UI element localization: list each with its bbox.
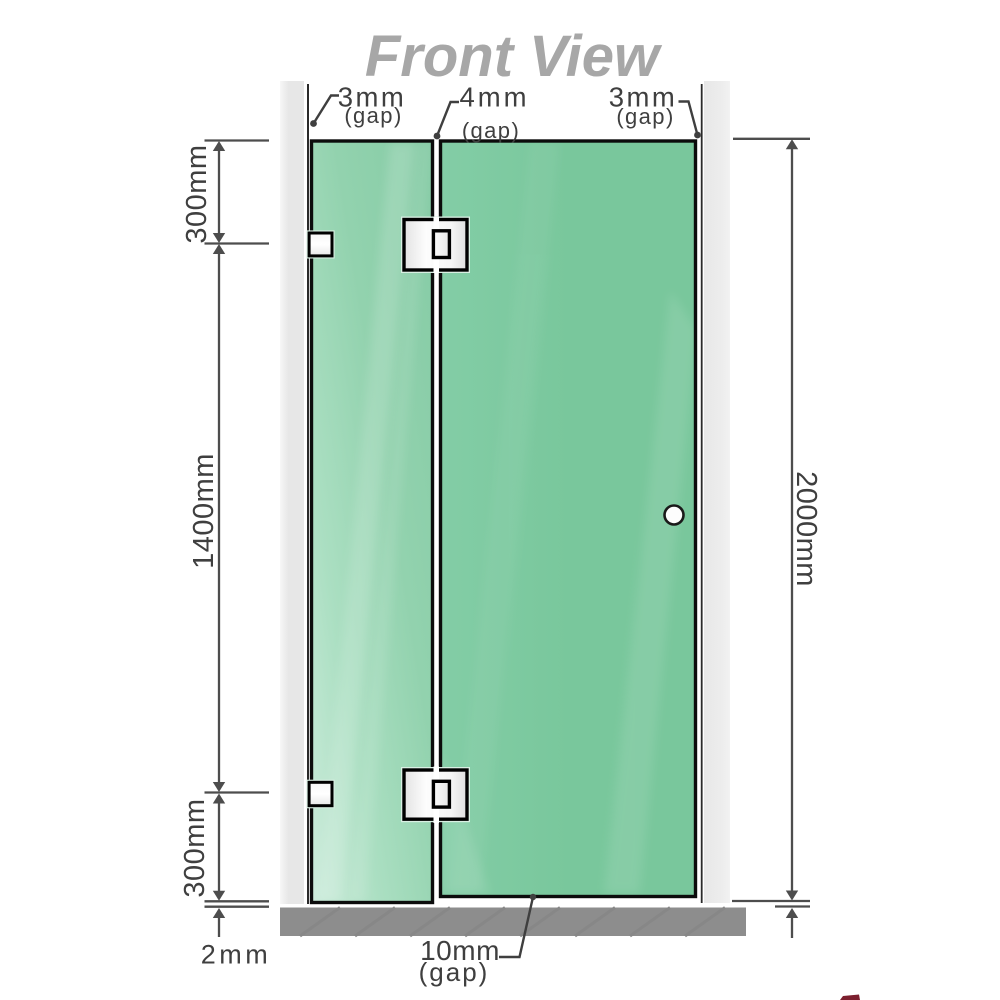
svg-text:2mm: 2mm — [201, 940, 272, 970]
svg-text:1400mm: 1400mm — [188, 453, 220, 569]
svg-text:300mm: 300mm — [181, 144, 213, 243]
svg-text:2000mm: 2000mm — [790, 471, 822, 587]
svg-text:300mm: 300mm — [179, 798, 211, 897]
svg-text:(gap): (gap) — [616, 104, 674, 129]
svg-text:(gap): (gap) — [344, 103, 402, 128]
svg-text:(gap): (gap) — [462, 118, 520, 143]
svg-text:4mm: 4mm — [459, 82, 529, 113]
svg-text:(gap): (gap) — [419, 957, 490, 987]
svg-text:Front View: Front View — [365, 24, 663, 89]
